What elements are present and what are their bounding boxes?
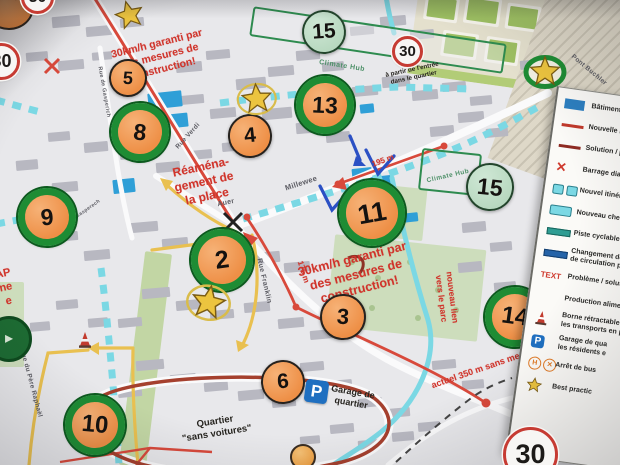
- legend-label: Piste cyclable pr: [573, 230, 620, 246]
- legend-label: Problème / solutio: [567, 274, 620, 291]
- speed-30-sign: 30: [392, 36, 423, 67]
- traffic-cone-icon: [79, 332, 91, 348]
- bus-stop-icon: H✕: [527, 355, 557, 372]
- solid-route-icon: [549, 204, 572, 217]
- legend-label: Nouvelle rue: [588, 124, 620, 139]
- legend-label: Production alimen: [564, 295, 620, 312]
- legend-item: Best practic: [524, 375, 620, 420]
- legend-label: Best practic: [551, 383, 592, 397]
- star-legend-icon: [524, 375, 544, 394]
- triangle-glyph: ▸: [5, 331, 13, 347]
- legend-label: Arrêt de bus: [554, 361, 596, 375]
- building-swatch-icon: [564, 98, 585, 111]
- red-x-barrier: [45, 59, 59, 73]
- legend-label: Barrage diago: [582, 166, 620, 181]
- star-sticker: [232, 77, 282, 126]
- legend-label: Nouvel itinérair: [579, 187, 620, 203]
- cycle-path-icon: [546, 227, 571, 237]
- red-line-icon: [561, 123, 583, 129]
- map-photo: 30km/h garanti pardes mesures deconstruc…: [0, 0, 620, 465]
- direction-change-icon: [543, 249, 568, 259]
- parking-legend-icon: P: [531, 334, 546, 349]
- legend-label: Solution / pro: [585, 145, 620, 160]
- partial-dot-sticker: [290, 444, 316, 465]
- legend-label: Nouveau chemi: [576, 209, 620, 225]
- dashed-route-icon: [552, 183, 578, 196]
- parking-icon: P: [304, 379, 330, 405]
- star-sticker: [178, 276, 238, 335]
- paper-map: 30km/h garanti pardes mesures deconstruc…: [0, 0, 620, 465]
- legend-label: Bâtiments pub: [591, 103, 620, 118]
- barrage-x-icon: ✕: [555, 162, 567, 173]
- text-sample-icon: TEXT: [540, 270, 562, 282]
- darkred-line-icon: [559, 144, 581, 150]
- cone-icon: [533, 309, 549, 327]
